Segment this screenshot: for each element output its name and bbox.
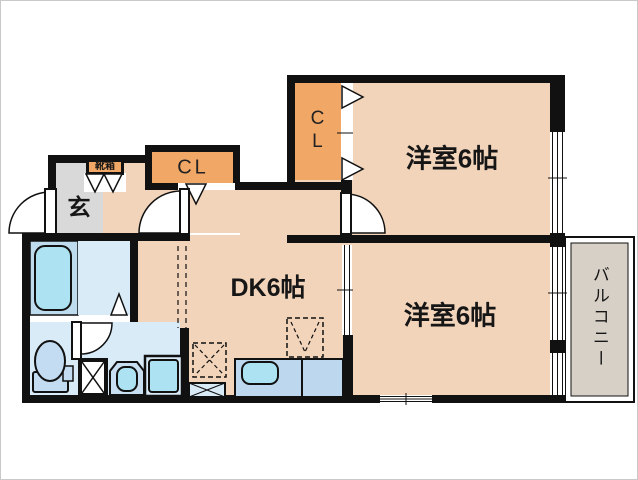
washbasin-bowl xyxy=(117,367,137,391)
wall-right-mid xyxy=(550,233,565,247)
kitchen-sink xyxy=(242,362,278,384)
entrance-door-leaf xyxy=(45,189,56,234)
floor-hatch xyxy=(189,383,225,397)
hallway-door-leaf xyxy=(180,189,189,234)
shoe-box-label: 靴箱 xyxy=(95,162,115,173)
wall-right-upper xyxy=(550,75,565,132)
pipe-shaft xyxy=(80,360,106,395)
dining-kitchen-label: DK6帖 xyxy=(230,275,305,301)
entrance-door-swing xyxy=(9,192,50,233)
bedroom2-label: 洋室6帖 xyxy=(404,302,496,329)
floor-plan-drawing xyxy=(0,0,638,480)
washbasin xyxy=(110,362,144,395)
bedroom1-door-leaf xyxy=(341,193,351,234)
wall-bath-right xyxy=(130,233,138,322)
wall-hall-top xyxy=(235,182,352,190)
washer-pan xyxy=(145,356,182,396)
balcony-label: バルコニー xyxy=(590,266,608,371)
entrance-label: 玄 xyxy=(68,195,91,219)
wall-bedroom1-left xyxy=(287,75,295,183)
hall-closet-label: CL xyxy=(177,158,209,179)
wall-bedroom2-left xyxy=(343,335,353,403)
toilet-bowl xyxy=(35,341,65,381)
wall-mid-horizontal xyxy=(287,235,565,243)
wall-top xyxy=(287,75,565,83)
wall-right-lower xyxy=(550,340,565,353)
washer-pan-inner xyxy=(149,360,178,392)
wall-entrance-left xyxy=(48,155,56,191)
washroom-door-leaf xyxy=(72,322,81,359)
bathtub xyxy=(35,246,71,310)
floor-plan-canvas: 玄 靴箱 CL CL 洋室6帖 洋室6帖 DK6帖 バルコニー xyxy=(0,0,638,480)
bedroom1-label: 洋室6帖 xyxy=(406,145,498,172)
bedroom-closet-label: CL xyxy=(307,108,327,154)
kitchen-counter xyxy=(235,359,343,397)
wall-left xyxy=(22,233,30,403)
